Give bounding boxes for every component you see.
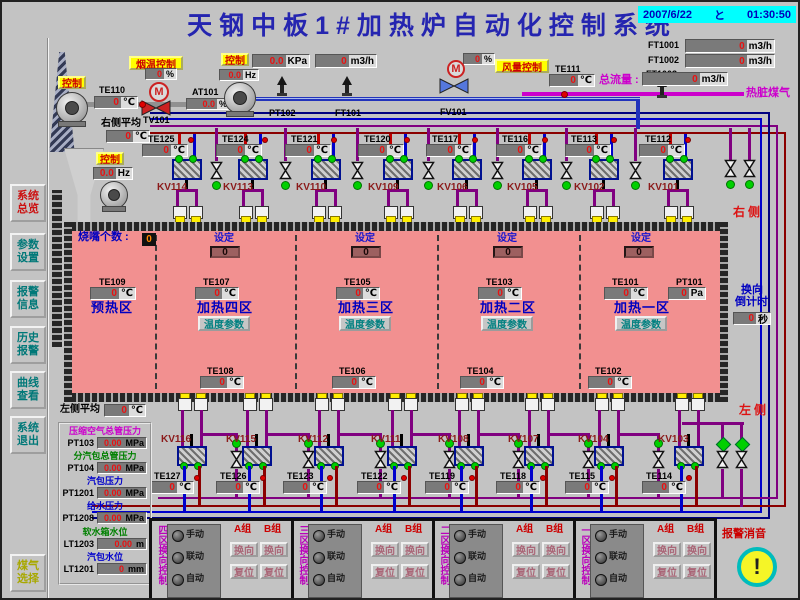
te-display-value: 0: [151, 482, 177, 493]
measurement-display-unit: MPa: [123, 488, 146, 498]
setpoint-label: 设定: [214, 234, 234, 245]
pipe-valve-icon: [716, 450, 729, 469]
measurement-display-value: 0.00: [98, 438, 123, 448]
zone-te-display-unit: ℃: [119, 288, 135, 299]
group-a-label: A组: [657, 525, 674, 536]
sidebar-item-7[interactable]: 煤气选择: [10, 554, 46, 592]
at101-label: AT101: [192, 88, 218, 97]
zone-te-display-value: 0: [337, 288, 363, 299]
te-display-unit: ℃: [177, 482, 193, 493]
measurement-tag: LT1203: [60, 540, 94, 549]
reverse-button-b[interactable]: 换向: [683, 542, 711, 557]
indicator-dot: [262, 137, 268, 143]
zone-te-display-unit: ℃: [222, 288, 238, 299]
countdown-display-unit: 秒: [756, 313, 770, 324]
measurement-display-unit: m: [134, 539, 146, 549]
measurement-name: 分汽包总管压力: [59, 452, 151, 461]
zone-name: 加热四区: [175, 301, 275, 315]
measurement-name: 汽包水位: [59, 553, 151, 562]
te111-display-value: 0: [550, 75, 578, 86]
kv-valve-label: KV108: [438, 435, 469, 446]
group-b-label: B组: [405, 525, 422, 536]
indicator-dot: [685, 137, 691, 143]
right-avg-display-unit: ℃: [133, 131, 149, 142]
indicator-dot: [404, 137, 410, 143]
pipe: [612, 189, 615, 207]
kv-valve-label: KV103: [658, 435, 689, 446]
flue-duct: [52, 190, 62, 347]
sidebar-item-5[interactable]: 曲线查看: [10, 371, 46, 409]
hot-dirty-gas-label: 热脏煤气: [746, 88, 790, 100]
status-lamp-icon: [595, 530, 607, 542]
lamp-label: 手动: [327, 530, 345, 539]
zone-divider: [295, 235, 297, 389]
pipe: [686, 189, 689, 207]
furnace-wall: [64, 222, 728, 231]
pipe: [408, 466, 411, 507]
pipe-valve-icon: [422, 161, 435, 180]
measurement-display-value: 0.00: [98, 539, 134, 549]
ft1002-display-value: 0: [686, 55, 747, 67]
pipe-valve-icon: [279, 161, 292, 180]
te-display-value: 0: [284, 482, 310, 493]
total-flow-display-unit: m3/h: [700, 73, 727, 85]
pipe: [263, 466, 266, 507]
indicator-dot: [539, 155, 547, 163]
indicator-dot: [611, 137, 617, 143]
status-lamp-icon: [172, 574, 184, 586]
kv-valve-label: KV104: [578, 435, 609, 446]
air-pressure-display-value: 0.0: [253, 55, 286, 67]
fan-base: [58, 121, 86, 127]
left-fan-control-button[interactable]: 控制: [96, 152, 124, 165]
pipe: [545, 466, 548, 507]
reset-button-a[interactable]: 复位: [512, 564, 540, 579]
measurement-display-unit: MPa: [123, 513, 146, 523]
pipe-valve-icon: [743, 159, 756, 178]
status-lamp-icon: [313, 530, 325, 542]
reset-button-b[interactable]: 复位: [260, 564, 288, 579]
measurement-display: 0.00MPa: [97, 462, 147, 474]
panel-title: 一区换向控制: [577, 525, 589, 599]
status-lamp-icon: [454, 530, 466, 542]
pipe: [92, 511, 762, 513]
reset-button-b[interactable]: 复位: [401, 564, 429, 579]
pipe-valve-icon: [210, 161, 223, 180]
measurement-tag: PT1208: [60, 514, 94, 523]
te111-display: 0℃: [549, 74, 595, 87]
pipe: [784, 132, 786, 507]
burner-count-value: 0: [142, 233, 156, 246]
pt101-display-unit: Pa: [689, 288, 705, 299]
indicator-dot: [424, 181, 433, 190]
indicator-dot: [666, 155, 674, 163]
measurement-name: 压缩空气总管压力: [59, 427, 151, 436]
left-avg-display-value: 0: [105, 405, 129, 416]
zone-te-display-unit: ℃: [631, 288, 647, 299]
group-a-label: A组: [375, 525, 392, 536]
pipe: [335, 466, 338, 507]
pipe: [406, 189, 409, 207]
indicator-dot: [606, 155, 614, 163]
total-flow-label: 总流量 :: [599, 75, 639, 87]
te110-display-value: 0: [95, 97, 121, 108]
setpoint-value[interactable]: 0: [351, 246, 381, 258]
group-b-label: B组: [546, 525, 563, 536]
indicator-dot: [493, 181, 502, 190]
zone-name: 加热一区: [592, 301, 692, 315]
reset-button-a[interactable]: 复位: [371, 564, 399, 579]
pipe: [150, 125, 778, 127]
fan-base: [226, 111, 254, 117]
indicator-dot: [540, 475, 546, 481]
lamp-label: 联动: [186, 552, 204, 561]
pipe-valve-icon: [724, 159, 737, 178]
reverse-button-a[interactable]: 换向: [371, 542, 399, 557]
setpoint-value[interactable]: 0: [624, 246, 654, 258]
group-a-label: A组: [516, 525, 533, 536]
pipe: [265, 410, 268, 446]
zone-te-display: 0℃: [336, 287, 380, 300]
indicator-dot: [472, 137, 478, 143]
indicator-dot: [327, 475, 333, 481]
zone-te-display: 0℃: [478, 287, 522, 300]
furnace-bottom-te-display-value: 0: [201, 377, 227, 388]
zone-te-display-unit: ℃: [505, 288, 521, 299]
air-pressure-display-unit: KPa: [286, 55, 309, 67]
temperature-params-button[interactable]: 温度参数: [198, 316, 250, 331]
pipe: [776, 125, 778, 499]
sidebar-item-1[interactable]: 系统总览: [10, 184, 46, 222]
pipe: [475, 466, 478, 507]
blower-hz-display: 0.0Hz: [219, 69, 259, 81]
te-display: 0℃: [425, 481, 469, 494]
ft1002-label: FT1002: [648, 56, 679, 65]
reverse-button-a[interactable]: 换向: [230, 542, 258, 557]
te-display: 0℃: [565, 144, 611, 157]
pipe: [695, 466, 698, 507]
fan-hub-icon: [65, 101, 79, 115]
indicator-dot: [745, 180, 754, 189]
pipe: [634, 128, 637, 161]
furnace-bottom-te-display: 0℃: [200, 376, 244, 389]
group-b-label: B组: [687, 525, 704, 536]
pipe-valve-icon: [351, 161, 364, 180]
kv-valve-label: KV109: [368, 183, 399, 194]
te-display-value: 0: [286, 145, 314, 156]
countdown-display-value: 0: [734, 313, 756, 324]
status-lamp-icon: [595, 574, 607, 586]
kv-valve-label: KV111: [371, 435, 400, 446]
te110-display-unit: ℃: [121, 97, 137, 108]
indicator-dot: [188, 137, 194, 143]
reverse-button-b[interactable]: 换向: [260, 542, 288, 557]
te-display: 0℃: [496, 144, 542, 157]
time-label: 01:30:50: [747, 9, 791, 21]
reverse-button-b[interactable]: 换向: [542, 542, 570, 557]
indicator-dot: [609, 475, 615, 481]
zone-te-display-value: 0: [479, 288, 505, 299]
left-fan-hz-display: 0.0Hz: [93, 167, 133, 180]
indicator-dot: [260, 475, 266, 481]
tv101-motor-icon[interactable]: M: [149, 82, 169, 102]
measurement-display-unit: mm: [126, 564, 146, 574]
setpoint-label: 设定: [631, 234, 651, 245]
furnace-wall: [720, 222, 728, 402]
setpoint-value[interactable]: 0: [493, 246, 523, 258]
ft1001-display-unit: m3/h: [747, 40, 774, 52]
kv-valve-label: KV102: [574, 183, 605, 194]
te-display: 0℃: [426, 144, 472, 157]
group-b-label: B组: [264, 525, 281, 536]
pipe: [620, 433, 660, 436]
te-display: 0℃: [639, 144, 685, 157]
measurement-tag: PT103: [60, 439, 94, 448]
indicator-dot: [139, 101, 146, 108]
burner-count-label: 烧嘴个数 :: [78, 232, 129, 244]
fv101-percent-display-value: 0: [464, 54, 482, 64]
zone-te-display: 0℃: [90, 287, 136, 300]
air-flow-display-unit: m3/h: [349, 55, 376, 67]
zone-name: 预热区: [62, 301, 162, 315]
alarm-mute-label: 报警消音: [722, 529, 766, 541]
left-fan-hz-display-value: 0.0: [94, 168, 116, 179]
pipe-valve-icon: [560, 161, 573, 180]
furnace-bottom-te-display: 0℃: [588, 376, 632, 389]
lamp-label: 联动: [609, 552, 627, 561]
control-valve-icon: [439, 78, 469, 94]
fv101-motor-icon[interactable]: M: [447, 60, 465, 78]
te-display-unit: ℃: [452, 482, 468, 493]
reset-button-a[interactable]: 复位: [653, 564, 681, 579]
temperature-params-button[interactable]: 温度参数: [339, 316, 391, 331]
measurement-name: 汽包压力: [59, 477, 151, 486]
sidebar-item-3[interactable]: 报警信息: [10, 280, 46, 318]
panel-title: 二区换向控制: [436, 525, 448, 599]
te110-display: 0℃: [94, 96, 138, 109]
te-display: 0℃: [216, 144, 262, 157]
clock-icon: と: [714, 7, 725, 23]
pipe: [697, 410, 700, 446]
te-display: 0℃: [565, 481, 609, 494]
lamp-label: 手动: [609, 530, 627, 539]
furnace-bottom-te-display-unit: ℃: [487, 377, 503, 388]
tv101-percent-display-value: 0: [146, 69, 164, 79]
indicator-dot: [631, 181, 640, 190]
sidebar-item-4[interactable]: 历史报警: [10, 326, 46, 364]
datetime-box: 2007/6/22 と 01:30:50: [638, 6, 796, 23]
total-flow-display: 0m3/h: [642, 72, 728, 86]
furnace-bottom-te-display-value: 0: [461, 377, 487, 388]
indicator-dot: [562, 181, 571, 190]
lamp-label: 自动: [468, 574, 486, 583]
te-display-value: 0: [359, 145, 387, 156]
pipe: [158, 497, 778, 499]
te-display-value: 0: [427, 145, 455, 156]
temperature-params-button[interactable]: 温度参数: [481, 316, 533, 331]
indicator-dot: [314, 155, 322, 163]
indicator-dot: [255, 155, 263, 163]
air-flow-display: 0m3/h: [315, 54, 377, 68]
status-lamp-icon: [172, 552, 184, 564]
lamp-label: 自动: [609, 574, 627, 583]
furnace-bottom-te-display-unit: ℃: [615, 377, 631, 388]
te-display: 0℃: [216, 481, 260, 494]
te-display: 0℃: [358, 144, 404, 157]
pipe: [682, 422, 744, 425]
kv-valve-label: KV110: [296, 183, 326, 194]
zone-te-display-value: 0: [605, 288, 631, 299]
te-display-unit: ℃: [384, 482, 400, 493]
reverse-button-a[interactable]: 换向: [653, 542, 681, 557]
zone-te-display: 0℃: [195, 287, 239, 300]
pipe: [337, 410, 340, 446]
measurement-display: 0.00MPa: [97, 487, 147, 499]
left-side-label: 左侧: [739, 404, 769, 417]
temperature-params-button[interactable]: 温度参数: [615, 316, 667, 331]
te-display-value: 0: [497, 482, 523, 493]
kv-valve-label: KV101: [648, 183, 679, 194]
status-lamp-icon: [172, 530, 184, 542]
furnace-bottom-te-display-value: 0: [333, 377, 359, 388]
indicator-dot: [680, 155, 688, 163]
te-display-unit: ℃: [523, 482, 539, 493]
gas-pipe: [522, 92, 744, 96]
air-volume-control-button[interactable]: 风量控制: [495, 59, 549, 73]
furnace-bottom-te-display: 0℃: [460, 376, 504, 389]
indicator-dot: [542, 137, 548, 143]
te-display-unit: ℃: [669, 482, 685, 493]
kv-valve-label: KV107: [508, 435, 539, 446]
zone-te-display-value: 0: [196, 288, 222, 299]
pipe: [721, 469, 724, 497]
status-lamp-icon: [313, 552, 325, 564]
measurement-display-value: 0.00: [98, 513, 123, 523]
pt102-label: PT102: [269, 109, 296, 118]
measurement-display-value: 0: [98, 564, 126, 574]
kv-valve-label: KV116: [161, 435, 191, 446]
pipe: [410, 410, 413, 446]
indicator-dot: [241, 155, 249, 163]
zone-te-display-unit: ℃: [363, 288, 379, 299]
air-control-button[interactable]: 控制: [221, 53, 249, 66]
lamp-label: 自动: [327, 574, 345, 583]
pipe: [150, 118, 762, 120]
countdown-label: 换向: [741, 285, 763, 297]
pipe-valve-icon: [735, 450, 748, 469]
te-display: 0℃: [150, 481, 194, 494]
zone-divider: [437, 235, 439, 389]
right-side-label: 右侧: [733, 206, 763, 219]
te-display-value: 0: [143, 145, 171, 156]
panel-divider: [573, 520, 576, 600]
control-valve-icon: [141, 100, 171, 116]
reset-button-b[interactable]: 复位: [683, 564, 711, 579]
pipe: [261, 189, 264, 207]
measurement-name: 给水压力: [59, 502, 151, 511]
ft1001-display: 0m3/h: [685, 39, 775, 53]
te-display-unit: ℃: [310, 482, 326, 493]
pipe: [729, 128, 732, 160]
reverse-button-b[interactable]: 换向: [401, 542, 429, 557]
te-display: 0℃: [285, 144, 331, 157]
measurement-display: 0.00MPa: [97, 437, 147, 449]
lamp-label: 手动: [468, 530, 486, 539]
lamp-label: 联动: [327, 552, 345, 561]
pipe: [617, 410, 620, 446]
te-display-value: 0: [426, 482, 452, 493]
te-display-unit: ℃: [592, 482, 608, 493]
flue-control-button[interactable]: 控制: [58, 76, 86, 89]
left-avg-display: 0℃: [104, 404, 146, 417]
reset-button-a[interactable]: 复位: [230, 564, 258, 579]
panel-title: 三区换向控制: [295, 525, 307, 599]
te-display-value: 0: [643, 482, 669, 493]
alarm-mute-button[interactable]: !: [737, 547, 777, 587]
sidebar-item-6[interactable]: 系统退出: [10, 416, 46, 454]
blower-hz-display-unit: Hz: [243, 70, 258, 80]
lamp-label: 联动: [468, 552, 486, 561]
air-pipe: [256, 98, 640, 99]
date-label: 2007/6/22: [643, 9, 692, 21]
kv-valve-label: KV114: [157, 183, 187, 194]
pt101-display: 0Pa: [668, 287, 706, 300]
panel-divider: [432, 520, 435, 600]
indicator-dot: [331, 137, 337, 143]
pipe: [740, 469, 743, 507]
reset-button-b[interactable]: 复位: [542, 564, 570, 579]
pipe-valve-icon: [374, 450, 387, 469]
pipe: [547, 410, 550, 446]
setpoint-label: 设定: [497, 234, 517, 245]
te-display-value: 0: [566, 145, 594, 156]
te-display-value: 0: [217, 145, 245, 156]
setpoint-value[interactable]: 0: [210, 246, 240, 258]
pipe: [477, 410, 480, 446]
right-avg-label: 右侧平均: [101, 119, 141, 130]
pipe-valve-icon: [652, 450, 665, 469]
sidebar-item-2[interactable]: 参数设置: [10, 233, 46, 271]
scada-screen: 天钢中板1#加热炉自动化控制系统 2007/6/22 と 01:30:50 控制…: [0, 0, 800, 600]
right-avg-display: 0℃: [106, 130, 150, 143]
fan-base: [102, 206, 126, 212]
pipe: [615, 466, 618, 507]
indicator-dot: [281, 181, 290, 190]
pipe: [200, 410, 203, 446]
separator: [48, 38, 49, 600]
te-display: 0℃: [357, 481, 401, 494]
measurement-tag: PT1201: [60, 489, 94, 498]
fv101-label: FV101: [440, 108, 467, 117]
left-fan-hz-display-unit: Hz: [116, 168, 132, 179]
zone-te-display-value: 0: [91, 288, 119, 299]
zone-name: 加热二区: [458, 301, 558, 315]
indicator-dot: [353, 181, 362, 190]
reverse-button-a[interactable]: 换向: [512, 542, 540, 557]
indicator-dot: [561, 91, 568, 98]
indicator-dot: [386, 155, 394, 163]
kv-valve-label: KV105: [507, 183, 538, 194]
instrument-icon: [339, 76, 355, 96]
countdown-label: 倒计时: [735, 297, 768, 309]
left-avg-label: 左侧平均: [60, 405, 100, 416]
blower-hz-display-value: 0.0: [220, 70, 243, 80]
indicator-dot: [455, 155, 463, 163]
pipe-valve-icon: [491, 161, 504, 180]
panel-title: 四区换向控制: [154, 525, 166, 599]
indicator-dot: [726, 180, 735, 189]
air-flow-display-value: 0: [316, 55, 349, 67]
